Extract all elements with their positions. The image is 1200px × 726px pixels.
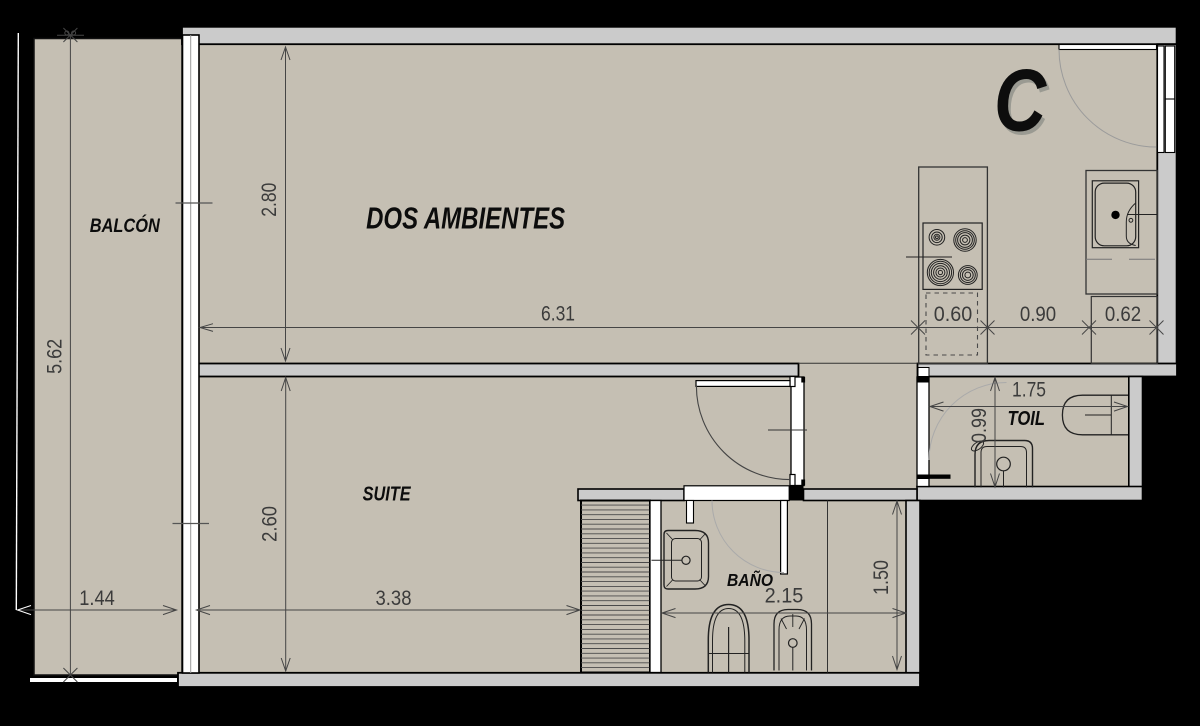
svg-text:2.80: 2.80 xyxy=(257,183,281,217)
svg-text:BALCÓN: BALCÓN xyxy=(90,215,161,237)
svg-text:0.90: 0.90 xyxy=(1020,302,1056,326)
svg-text:DOS AMBIENTES: DOS AMBIENTES xyxy=(366,202,566,236)
svg-text:1.75: 1.75 xyxy=(1012,378,1046,402)
svg-text:TOIL: TOIL xyxy=(1008,407,1046,430)
svg-text:0.99: 0.99 xyxy=(967,408,991,443)
svg-text:SUITE: SUITE xyxy=(363,484,412,506)
svg-text:BAÑO: BAÑO xyxy=(727,569,773,590)
svg-text:6.31: 6.31 xyxy=(541,302,575,326)
svg-text:2.60: 2.60 xyxy=(258,506,282,542)
svg-text:5.62: 5.62 xyxy=(43,339,67,374)
svg-text:0.60: 0.60 xyxy=(934,302,973,326)
svg-text:0.62: 0.62 xyxy=(1105,302,1141,326)
svg-text:1.44: 1.44 xyxy=(79,586,115,610)
svg-text:3.38: 3.38 xyxy=(376,586,412,610)
svg-text:1.50: 1.50 xyxy=(869,560,893,595)
svg-text:C: C xyxy=(994,52,1048,150)
